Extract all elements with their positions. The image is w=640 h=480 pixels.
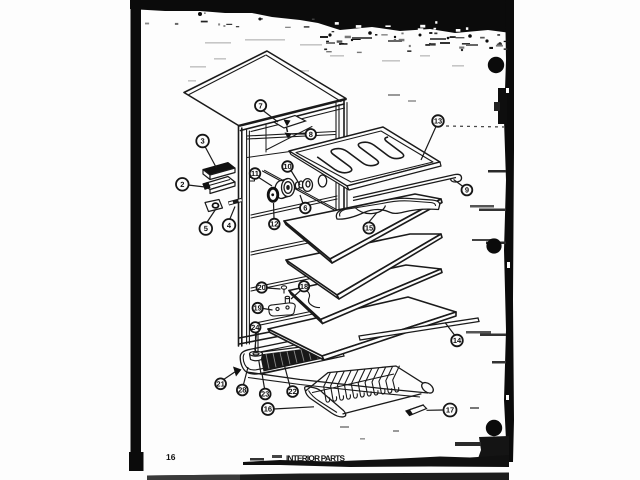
svg-text:12: 12 <box>270 220 278 229</box>
svg-text:INTERIOR PARTS: INTERIOR PARTS <box>286 454 346 463</box>
svg-text:11: 11 <box>251 169 259 178</box>
svg-text:15: 15 <box>365 224 373 233</box>
svg-text:18: 18 <box>300 282 308 291</box>
svg-text:20: 20 <box>258 283 266 292</box>
svg-text:8: 8 <box>309 130 313 139</box>
svg-text:22: 22 <box>288 387 296 396</box>
svg-text:28: 28 <box>238 386 246 395</box>
svg-text:19: 19 <box>254 304 262 313</box>
svg-text:2: 2 <box>180 180 184 189</box>
svg-text:9: 9 <box>465 186 469 195</box>
svg-text:3: 3 <box>201 137 205 146</box>
svg-text:10: 10 <box>283 162 291 171</box>
svg-text:21: 21 <box>216 380 224 389</box>
svg-text:17: 17 <box>446 406 454 415</box>
svg-text:6: 6 <box>303 204 307 213</box>
svg-text:16: 16 <box>264 405 272 414</box>
svg-text:7: 7 <box>259 101 263 110</box>
svg-text:14: 14 <box>453 336 462 345</box>
svg-text:23: 23 <box>261 390 269 399</box>
svg-text:13: 13 <box>434 117 442 126</box>
svg-text:16: 16 <box>166 452 176 462</box>
svg-text:5: 5 <box>204 224 208 233</box>
svg-text:24: 24 <box>251 323 260 332</box>
